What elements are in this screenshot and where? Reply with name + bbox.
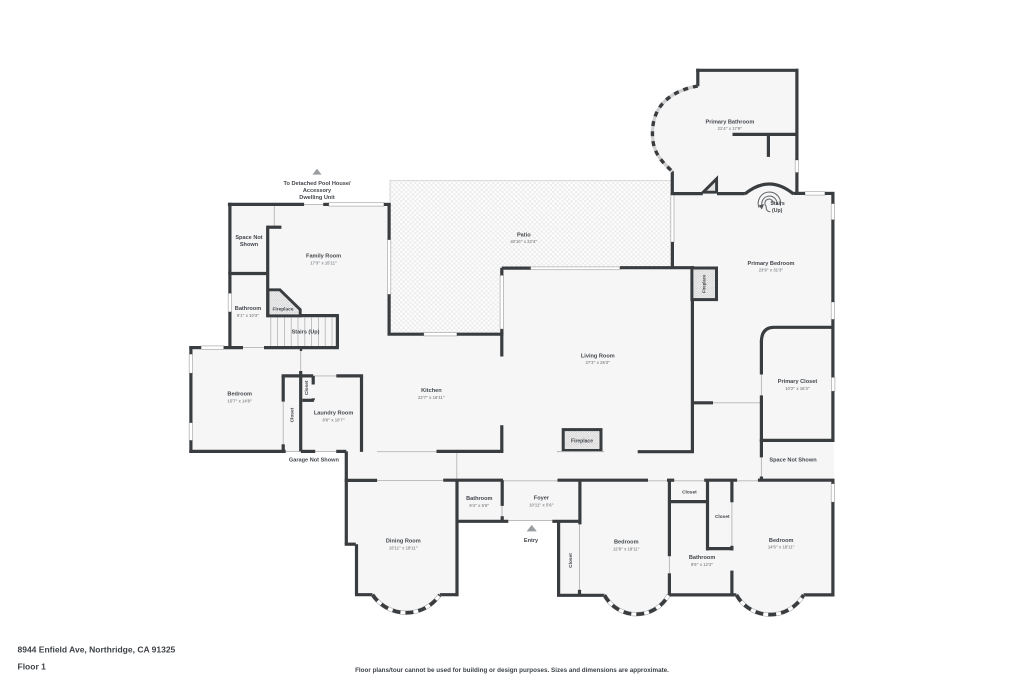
svg-text:Bedroom: Bedroom [769,538,794,544]
svg-text:Bathroom: Bathroom [235,306,261,312]
svg-text:10'2" x 16'3": 10'2" x 16'3" [785,386,810,391]
svg-text:Fireplace: Fireplace [571,438,593,444]
svg-text:Closet: Closet [682,490,697,496]
svg-text:Primary Bedroom: Primary Bedroom [748,261,795,267]
svg-text:Fireplace: Fireplace [272,306,293,312]
svg-text:10'11" x 5'6": 10'11" x 5'6" [529,502,553,507]
svg-text:Foyer: Foyer [534,496,550,502]
svg-text:Fireplace: Fireplace [702,274,707,293]
svg-text:23'9" x 31'3": 23'9" x 31'3" [759,268,784,273]
svg-text:Closet: Closet [715,514,730,520]
svg-text:15'7" x 14'8": 15'7" x 14'8" [227,398,252,403]
svg-text:15'11" x 18'11": 15'11" x 18'11" [389,545,418,550]
svg-text:Shown: Shown [240,242,259,248]
svg-text:21'4" x 17'9": 21'4" x 17'9" [718,126,743,131]
svg-text:Dining Room: Dining Room [386,539,421,545]
svg-text:Kitchen: Kitchen [421,388,442,394]
svg-text:Stairs (Up): Stairs (Up) [292,329,320,335]
svg-text:Primary Bathroom: Primary Bathroom [705,120,754,126]
svg-text:Primary Closet: Primary Closet [778,379,818,385]
svg-text:6'4" x 5'6": 6'4" x 5'6" [469,503,489,508]
svg-text:Floor plans/tour cannot be use: Floor plans/tour cannot be used for buil… [355,667,669,674]
svg-text:12'8" x 18'11": 12'8" x 18'11" [613,547,640,552]
svg-text:Bathroom: Bathroom [689,555,715,561]
svg-text:17'3" x 15'11": 17'3" x 15'11" [310,260,337,265]
svg-text:27'3" x 26'3": 27'3" x 26'3" [586,360,611,365]
svg-text:Bedroom: Bedroom [614,540,639,546]
svg-text:Bedroom: Bedroom [227,392,252,398]
svg-text:Closet: Closet [290,407,296,422]
svg-text:Laundry Room: Laundry Room [314,411,353,417]
svg-text:Closet: Closet [304,380,310,395]
svg-text:(Up): (Up) [772,208,783,214]
svg-text:14'5" x 18'11": 14'5" x 18'11" [768,545,795,550]
svg-text:Garage Not Shown: Garage Not Shown [289,458,340,464]
svg-text:Dwelling Unit: Dwelling Unit [299,195,335,201]
svg-text:Accessory: Accessory [303,188,332,194]
svg-text:8'6" x 12'3": 8'6" x 12'3" [691,562,713,567]
svg-text:To Detached Pool House/: To Detached Pool House/ [283,181,350,187]
svg-text:Family Room: Family Room [306,253,341,259]
svg-text:40'10" x 22'4": 40'10" x 22'4" [510,239,537,244]
svg-text:Bathroom: Bathroom [466,496,492,502]
svg-text:8944 Enfield Ave, Northridge,: 8944 Enfield Ave, Northridge, CA 91325 [18,645,176,655]
svg-text:Living Room: Living Room [581,353,615,359]
svg-text:Space Not: Space Not [235,235,262,241]
svg-text:Patio: Patio [517,232,531,238]
svg-text:5'1" x 10'3": 5'1" x 10'3" [237,313,259,318]
svg-text:8'6" x 10'7": 8'6" x 10'7" [322,417,344,422]
svg-text:22'7" x 16'11": 22'7" x 16'11" [418,395,445,400]
svg-text:Space Not Shown: Space Not Shown [769,458,817,464]
svg-text:Floor 1: Floor 1 [18,662,47,672]
svg-text:Closet: Closet [568,553,574,568]
svg-text:Entry: Entry [524,538,539,544]
svg-text:Stairs: Stairs [770,201,785,207]
